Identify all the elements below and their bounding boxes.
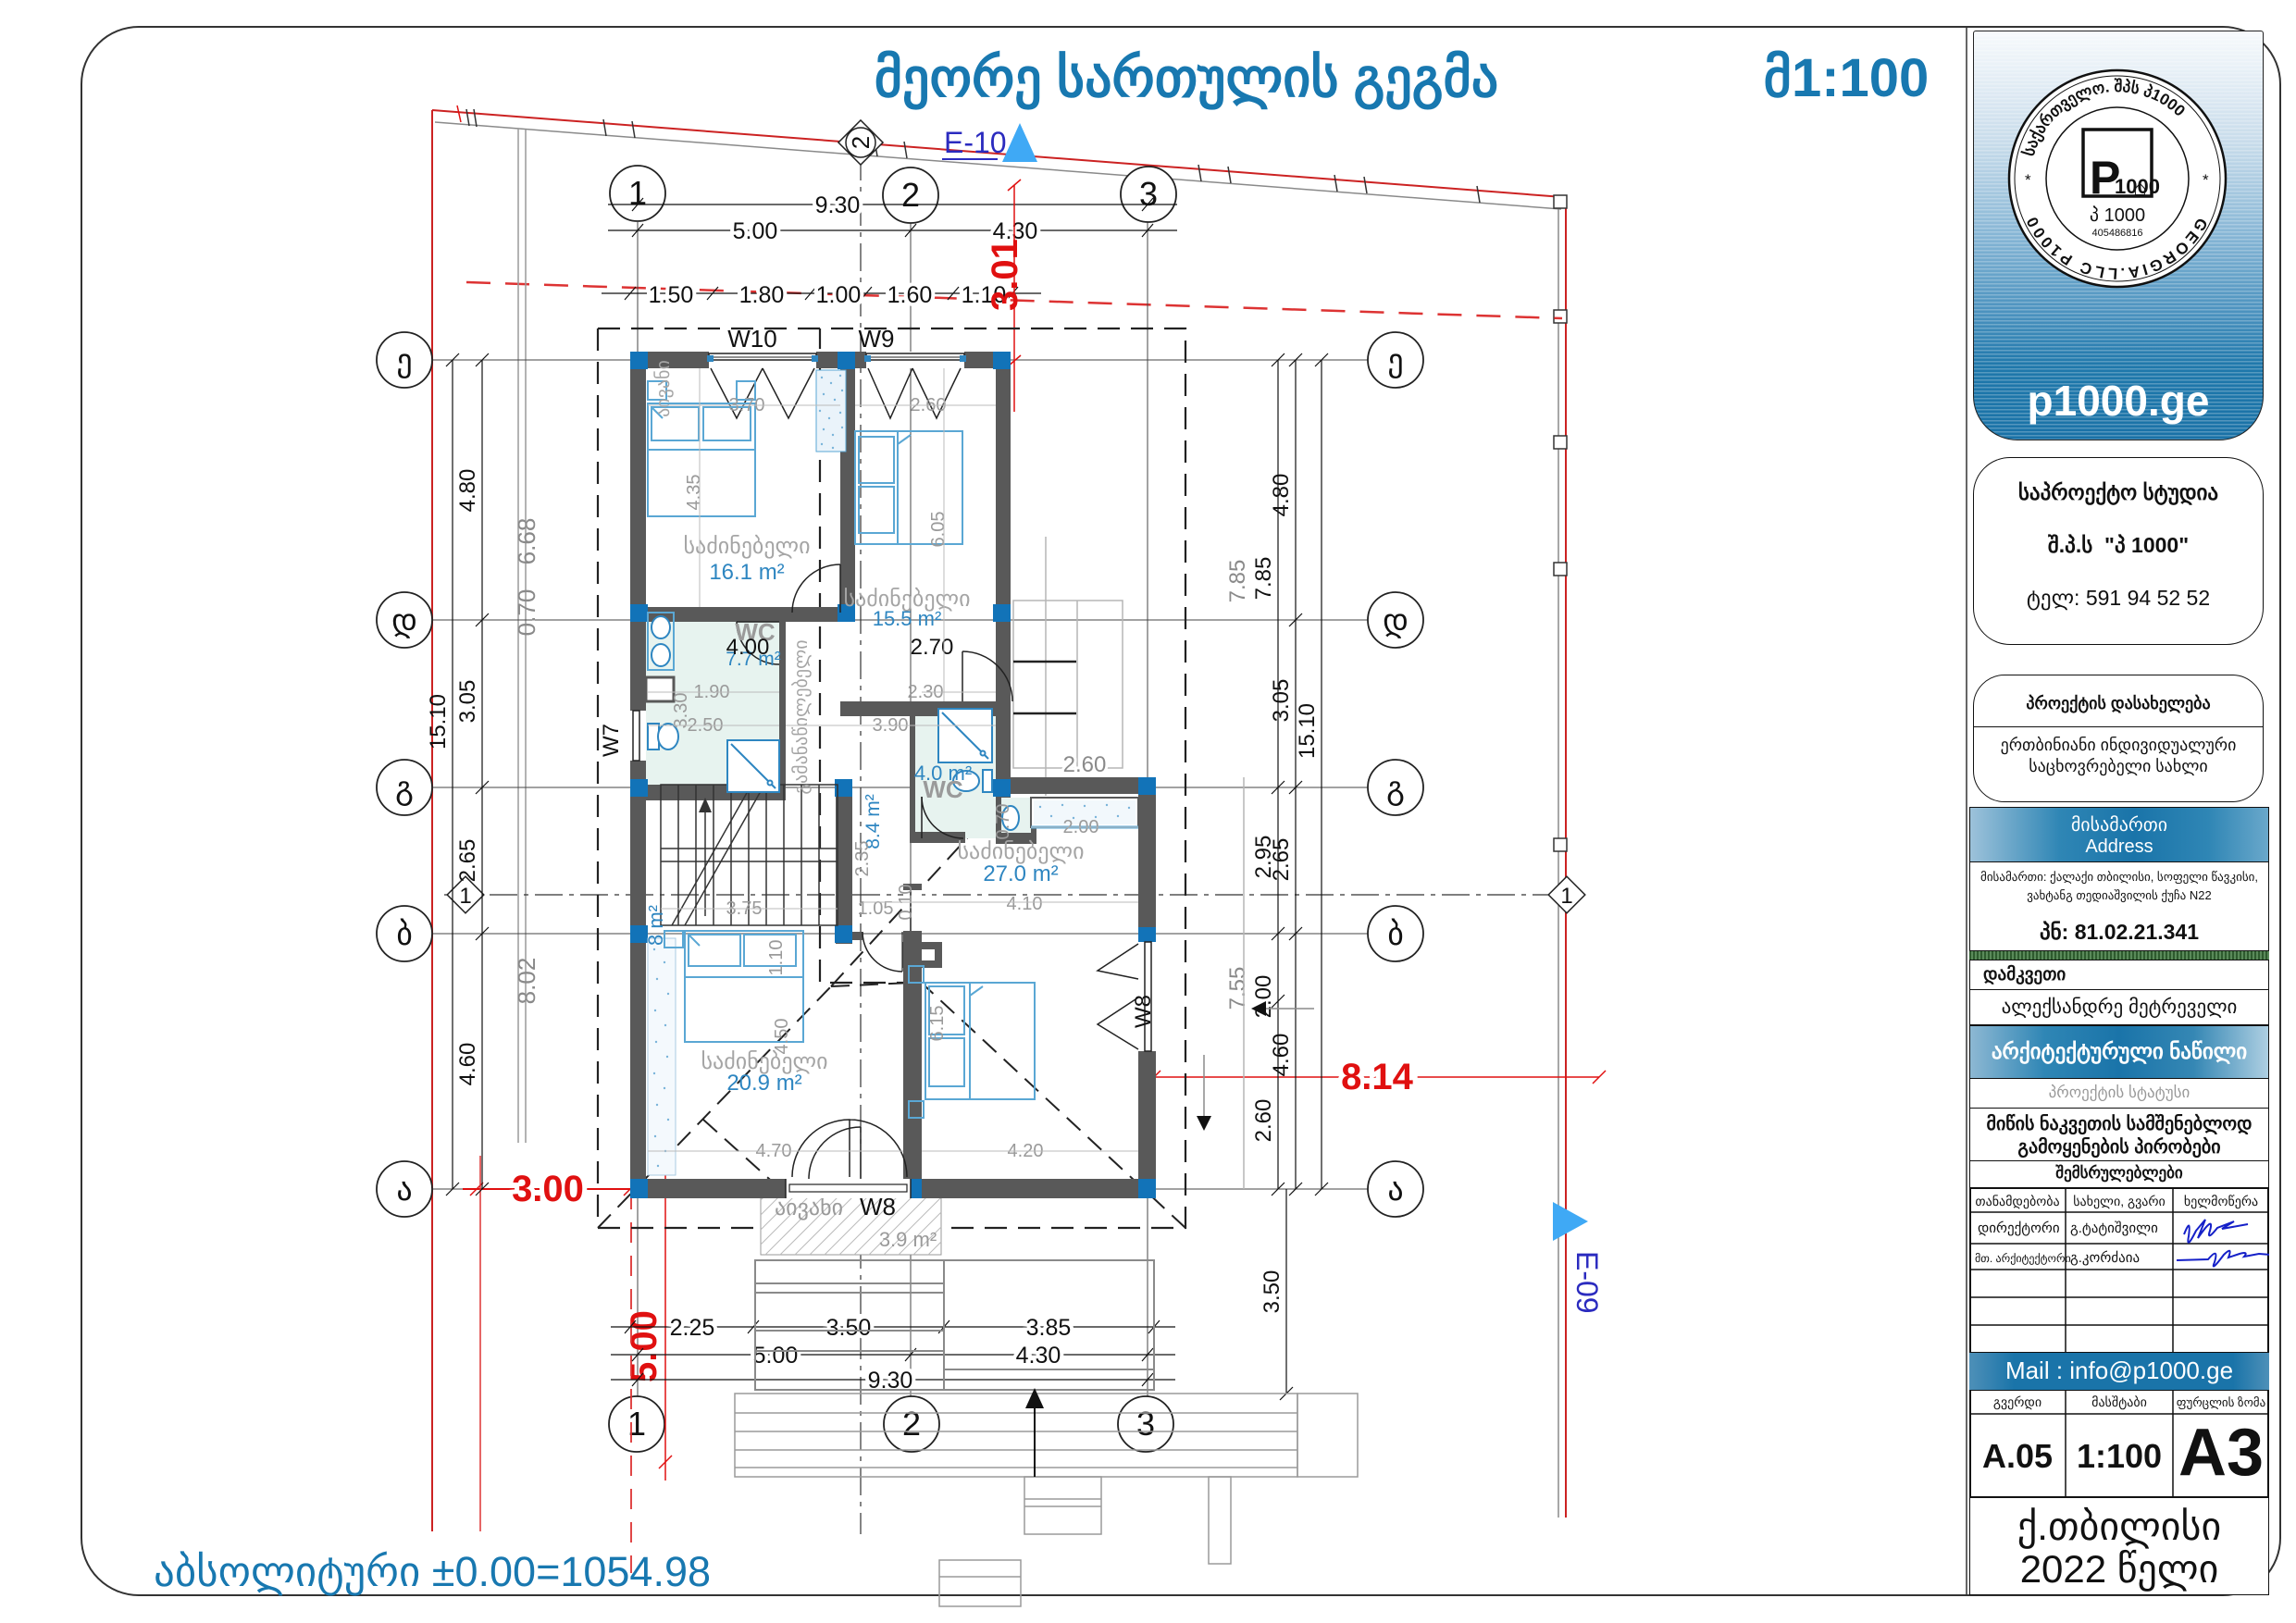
svg-text:1: 1 [459, 884, 471, 909]
svg-text:ა: ა [396, 1172, 412, 1208]
svg-text:დირექტორი: დირექტორი [1978, 1220, 2060, 1236]
svg-text:8.14: 8.14 [1341, 1057, 1414, 1097]
svg-text:ბ: ბ [396, 917, 413, 952]
svg-text:0.70: 0.70 [513, 589, 540, 637]
svg-text:გამანაწილებელი: გამანაწილებელი [791, 639, 812, 794]
svg-text:გ: გ [395, 771, 414, 806]
svg-text:6.15: 6.15 [927, 1006, 948, 1042]
svg-text:1.05: 1.05 [858, 898, 894, 919]
svg-text:6.68: 6.68 [513, 518, 540, 565]
svg-text:16.1 m²: 16.1 m² [709, 560, 784, 585]
svg-text:5.00: 5.00 [753, 1343, 799, 1369]
svg-text:*: * [2203, 171, 2209, 189]
svg-text:ფურცლის ზომა: ფურცლის ზომა [2177, 1395, 2265, 1410]
svg-text:დ: დ [1383, 603, 1409, 638]
svg-text:0.70: 0.70 [993, 804, 1013, 840]
svg-text:W10: W10 [727, 325, 776, 353]
svg-text:WC: WC [923, 775, 963, 803]
svg-text:ბ: ბ [1387, 917, 1404, 952]
svg-text:მთ. არქიტექტორი: მთ. არქიტექტორი [1975, 1252, 2071, 1265]
svg-text:1.00: 1.00 [816, 282, 862, 308]
svg-text:4.10: 4.10 [1007, 894, 1043, 914]
svg-text:4.35: 4.35 [684, 475, 704, 511]
svg-text:3: 3 [1139, 175, 1158, 213]
svg-text:7.85: 7.85 [1251, 557, 1276, 601]
svg-text:1.60: 1.60 [887, 282, 933, 308]
svg-text:აივანი: აივანი [653, 360, 674, 417]
svg-text:4.00: 4.00 [726, 635, 770, 660]
svg-text:20.9 m²: 20.9 m² [726, 1071, 801, 1096]
svg-text:2: 2 [847, 136, 875, 149]
svg-text:3: 3 [1136, 1405, 1155, 1443]
svg-text:საძინებელი: საძინებელი [958, 839, 1085, 864]
svg-text:საძინებელი: საძინებელი [684, 534, 811, 559]
svg-text:1.50: 1.50 [649, 282, 694, 308]
svg-text:2.60: 2.60 [1251, 1099, 1276, 1143]
svg-text:ე: ე [1387, 343, 1403, 379]
svg-text:1: 1 [628, 174, 647, 212]
svg-text:სახელი, გვარი: სახელი, გვარი [2073, 1194, 2166, 1209]
svg-text:3.85: 3.85 [1026, 1315, 1072, 1341]
svg-text:405486816: 405486816 [2091, 228, 2142, 239]
svg-text:1.10: 1.10 [766, 940, 787, 976]
svg-text:8.02: 8.02 [513, 958, 540, 1005]
svg-text:3.9 m²: 3.9 m² [879, 1228, 937, 1251]
svg-text:3.00: 3.00 [512, 1169, 584, 1209]
svg-text:დ: დ [391, 603, 417, 638]
svg-text:*: * [2025, 171, 2031, 189]
svg-text:27.0 m²: 27.0 m² [983, 861, 1058, 886]
svg-text:4.50: 4.50 [772, 1019, 792, 1055]
svg-text:8 m²: 8 m² [644, 905, 667, 946]
svg-text:3.01: 3.01 [985, 239, 1025, 311]
svg-text:⌂: ⌂ [2133, 176, 2147, 201]
svg-text:7.85: 7.85 [1225, 560, 1250, 603]
svg-text:4.30: 4.30 [1016, 1343, 1061, 1369]
svg-text:6.05: 6.05 [928, 512, 949, 548]
svg-text:3.50: 3.50 [826, 1315, 872, 1341]
svg-text:E-10: E-10 [944, 126, 1007, 159]
svg-text:5.00: 5.00 [733, 218, 778, 244]
svg-text:5.00: 5.00 [624, 1310, 664, 1382]
svg-text:15.5 m²: 15.5 m² [873, 607, 942, 630]
svg-text:4.80: 4.80 [455, 469, 480, 513]
svg-text:15.10: 15.10 [426, 694, 451, 750]
svg-text:2: 2 [901, 176, 920, 214]
svg-text:9.30: 9.30 [815, 192, 861, 218]
svg-text:ა: ა [1387, 1172, 1403, 1208]
svg-text:3.05: 3.05 [455, 680, 480, 724]
svg-text:მასშტაბი: მასშტაბი [2091, 1394, 2147, 1410]
svg-text:2.65: 2.65 [1269, 838, 1294, 882]
svg-text:15.10: 15.10 [1295, 703, 1320, 759]
svg-text:აივანი: აივანი [775, 1196, 843, 1220]
svg-text:2.65: 2.65 [455, 839, 480, 883]
svg-text:3.05: 3.05 [1269, 679, 1294, 723]
svg-text:ხელმოწერა: ხელმოწერა [2184, 1194, 2258, 1209]
svg-text:გ.ტატიშვილი: გ.ტატიშვილი [2070, 1220, 2158, 1236]
svg-text:2.25: 2.25 [670, 1315, 715, 1341]
svg-text:1: 1 [627, 1405, 646, 1443]
svg-text:გ: გ [1386, 771, 1405, 806]
svg-text:4.60: 4.60 [1269, 1034, 1294, 1077]
svg-text:7.55: 7.55 [1225, 967, 1250, 1010]
svg-text:A3: A3 [2178, 1416, 2264, 1490]
svg-text:2: 2 [902, 1405, 921, 1443]
svg-text:3.30: 3.30 [671, 693, 691, 729]
svg-text:1.80: 1.80 [739, 282, 785, 308]
svg-text:გ.კორძაია: გ.კორძაია [2070, 1250, 2140, 1266]
svg-text:W7: W7 [599, 724, 624, 757]
svg-text:4.60: 4.60 [455, 1043, 480, 1086]
svg-text:თანამდებობა: თანამდებობა [1975, 1194, 2059, 1209]
svg-text:გვერდი: გვერდი [1993, 1394, 2042, 1410]
svg-text:W9: W9 [859, 325, 895, 353]
svg-text:2.35: 2.35 [852, 841, 873, 877]
svg-text:1: 1 [1560, 884, 1572, 909]
svg-text:4.80: 4.80 [1269, 474, 1294, 517]
svg-text:2.70: 2.70 [911, 635, 954, 660]
svg-text:პ 1000: პ 1000 [2090, 205, 2145, 226]
svg-text:E-09: E-09 [1570, 1251, 1604, 1314]
svg-text:3.50: 3.50 [1260, 1270, 1285, 1314]
svg-text:2.60: 2.60 [1063, 752, 1107, 777]
svg-text:ე: ე [396, 343, 412, 379]
svg-text:W8: W8 [1131, 995, 1156, 1028]
svg-text:A.05: A.05 [1982, 1437, 2053, 1475]
svg-text:1:100: 1:100 [2077, 1437, 2162, 1475]
